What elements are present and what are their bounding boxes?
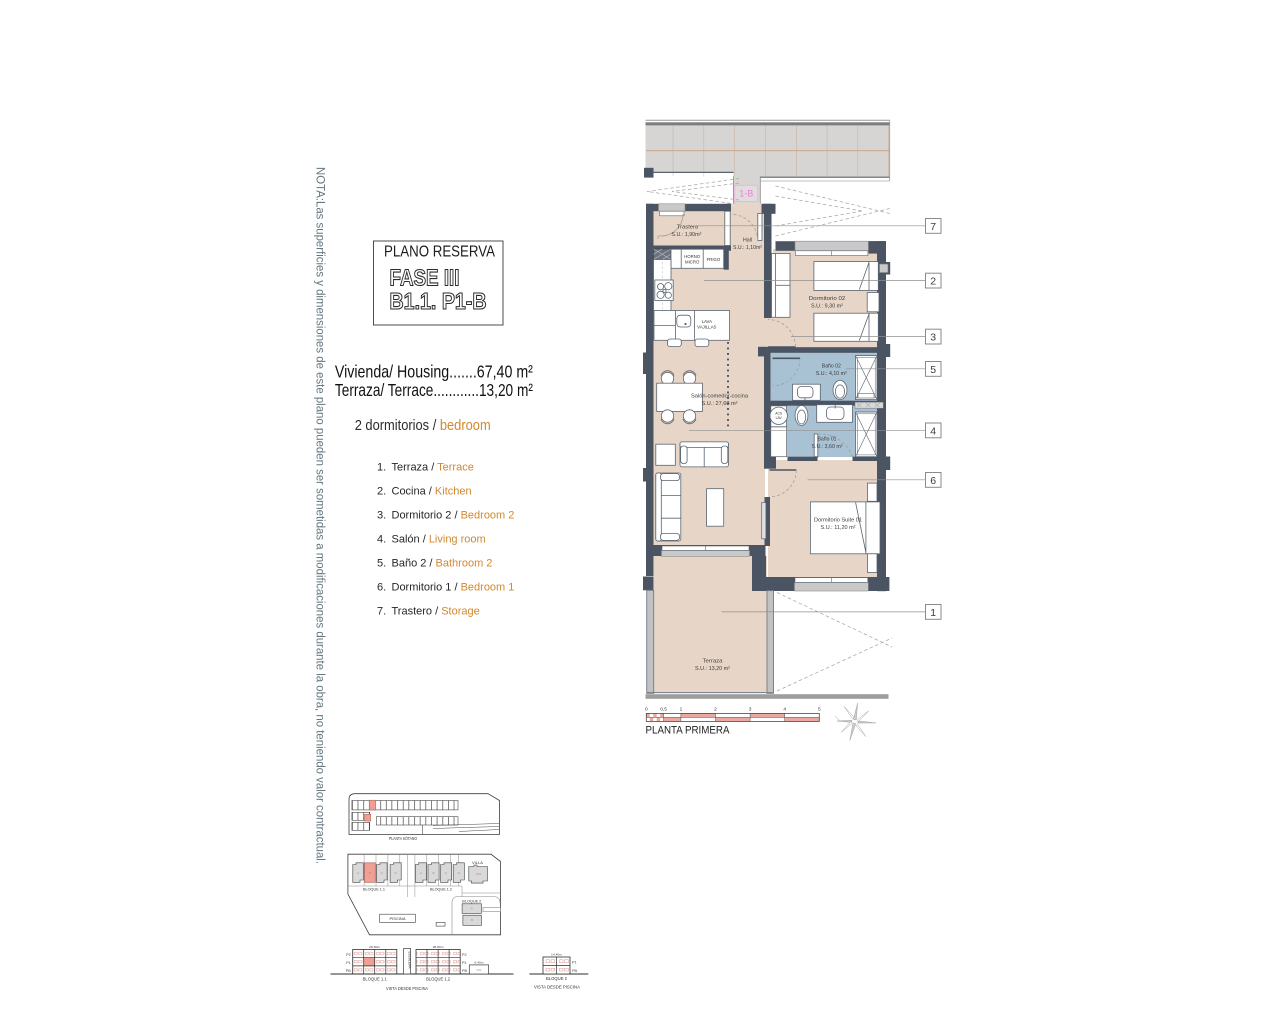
svg-text:5: 5: [818, 707, 821, 713]
svg-text:LAVA: LAVA: [702, 319, 712, 324]
svg-text:3: 3: [749, 707, 752, 713]
svg-text:4.Salón / Living room: 4.Salón / Living room: [377, 534, 486, 546]
svg-text:S.U.: 9,30 m²: S.U.: 9,30 m²: [811, 304, 843, 310]
svg-text:A: A: [357, 871, 359, 875]
svg-text:Dormitorio 02: Dormitorio 02: [809, 296, 846, 302]
svg-text:S.U.: 4,10 m²: S.U.: 4,10 m²: [816, 371, 847, 377]
svg-text:Vivienda/ Housing.......67,40: Vivienda/ Housing.......67,40 m²: [335, 362, 533, 382]
svg-text:P1: P1: [572, 961, 577, 965]
svg-text:FASE III: FASE III: [390, 265, 460, 291]
svg-text:Hall: Hall: [743, 238, 752, 244]
svg-text:5.Baño 2 / Bathroom 2: 5.Baño 2 / Bathroom 2: [377, 558, 492, 570]
svg-text:28.80m: 28.80m: [433, 945, 445, 949]
svg-text:VILLA: VILLA: [472, 860, 483, 865]
svg-text:S.U.: 11,20 m²: S.U.: 11,20 m²: [821, 525, 856, 531]
svg-text:2: 2: [930, 276, 936, 288]
svg-text:VAJILLAS: VAJILLAS: [697, 324, 716, 329]
svg-text:1-B: 1-B: [739, 189, 753, 199]
svg-text:1.Terraza / Terrace: 1.Terraza / Terrace: [377, 461, 474, 473]
svg-text:0,5: 0,5: [660, 707, 667, 713]
svg-text:PLANO RESERVA: PLANO RESERVA: [384, 244, 496, 261]
svg-text:S.U.: 13,20 m²: S.U.: 13,20 m²: [695, 666, 730, 672]
svg-text:PLANTA SÓTANO: PLANTA SÓTANO: [389, 836, 418, 841]
svg-text:28.80m: 28.80m: [369, 945, 381, 949]
svg-text:1: 1: [930, 607, 936, 619]
svg-text:V01: V01: [476, 872, 482, 876]
svg-text:4: 4: [930, 425, 936, 437]
svg-text:Salón-comedor-cocina: Salón-comedor-cocina: [691, 394, 748, 400]
svg-text:P2: P2: [346, 953, 351, 957]
svg-text:5: 5: [930, 364, 936, 376]
svg-text:BLOQUE 1.2: BLOQUE 1.2: [426, 976, 451, 981]
svg-text:14.40m: 14.40m: [551, 953, 563, 957]
svg-text:P1: P1: [462, 961, 467, 965]
svg-text:BLOQUE 1.1: BLOQUE 1.1: [363, 976, 388, 981]
svg-text:Trastero: Trastero: [677, 224, 699, 230]
svg-text:1: 1: [680, 707, 683, 713]
svg-text:NOTA:Las superficies y dimensi: NOTA:Las superficies y dimensiones de es…: [314, 167, 328, 864]
svg-text:2: 2: [714, 707, 717, 713]
svg-text:2 dormitorios / bedroom: 2 dormitorios / bedroom: [355, 417, 491, 434]
svg-text:S.U.: 27,60 m²: S.U.: 27,60 m²: [702, 401, 738, 407]
svg-text:FRIGO: FRIGO: [707, 257, 721, 262]
svg-text:BLOQUE 1.2: BLOQUE 1.2: [430, 887, 453, 892]
svg-text:S.U.: 3,60 m²: S.U.: 3,60 m²: [812, 444, 843, 450]
svg-text:Baño 01: Baño 01: [818, 437, 837, 443]
svg-text:2.Cocina / Kitchen: 2.Cocina / Kitchen: [377, 485, 472, 497]
svg-text:VISTA DESDE PISCINA: VISTA DESDE PISCINA: [534, 985, 580, 990]
svg-text:BLOQUE 2: BLOQUE 2: [462, 898, 482, 903]
svg-text:B: B: [369, 871, 371, 875]
svg-text:MICRO: MICRO: [685, 259, 700, 264]
svg-text:V01: V01: [476, 968, 482, 972]
svg-text:BLOQUE 1.1: BLOQUE 1.1: [363, 887, 386, 892]
svg-text:Baño 02: Baño 02: [822, 363, 841, 369]
svg-text:PB: PB: [462, 969, 468, 973]
svg-text:B: B: [432, 871, 434, 875]
svg-text:3: 3: [930, 332, 936, 344]
svg-text:7.Trastero / Storage: 7.Trastero / Storage: [377, 606, 480, 618]
svg-text:Dormitorio Suite 01: Dormitorio Suite 01: [814, 518, 862, 524]
svg-text:S.U.: 1,10m²: S.U.: 1,10m²: [733, 245, 762, 251]
svg-text:Terraza/ Terrace............13: Terraza/ Terrace............13,20 m²: [335, 380, 533, 400]
svg-text:PLANTA PRIMERA: PLANTA PRIMERA: [646, 725, 730, 737]
svg-text:A: A: [420, 871, 422, 875]
svg-text:B: B: [471, 918, 473, 922]
svg-text:7: 7: [930, 221, 936, 233]
svg-text:P1: P1: [346, 961, 351, 965]
svg-text:6.40m: 6.40m: [475, 960, 485, 964]
svg-text:Terraza: Terraza: [703, 658, 723, 664]
svg-text:BLOQUE 2: BLOQUE 2: [546, 976, 568, 981]
svg-text:B1.1. P1-B: B1.1. P1-B: [390, 288, 487, 314]
svg-text:PISCINA: PISCINA: [390, 916, 406, 921]
svg-text:HORNO: HORNO: [684, 254, 701, 259]
svg-text:A: A: [471, 907, 473, 911]
svg-text:P2: P2: [462, 953, 467, 957]
svg-text:6: 6: [930, 475, 936, 487]
svg-text:4: 4: [783, 707, 786, 713]
svg-text:LAV: LAV: [776, 416, 783, 420]
svg-text:3.Dormitorio 2 / Bedroom 2: 3.Dormitorio 2 / Bedroom 2: [377, 509, 514, 521]
svg-text:PB: PB: [346, 969, 352, 973]
svg-text:VISTA DESDE PISCINA: VISTA DESDE PISCINA: [386, 986, 428, 991]
svg-text:ESCALERA: ESCALERA: [408, 952, 412, 970]
svg-text:S.U.: 1,90m²: S.U.: 1,90m²: [671, 232, 701, 238]
svg-text:0: 0: [645, 707, 648, 713]
svg-text:6.Dormitorio 1 / Bedroom 1: 6.Dormitorio 1 / Bedroom 1: [377, 582, 514, 594]
svg-text:PB: PB: [572, 969, 578, 973]
